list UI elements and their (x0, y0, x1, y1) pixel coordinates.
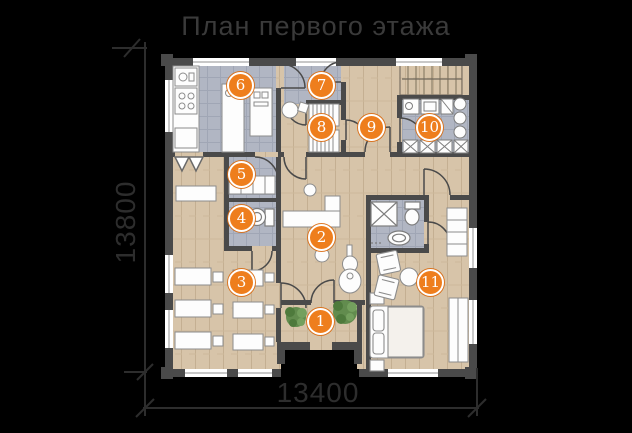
bed-icon (370, 306, 424, 358)
room-number: 8 (317, 120, 327, 135)
room-number: 10 (420, 120, 439, 135)
room-number: 4 (237, 211, 247, 226)
room-marker-11: 11 (417, 269, 444, 296)
shower-icon (371, 202, 397, 226)
floor-plan (0, 0, 632, 433)
dimension-height-label: 13800 (110, 181, 142, 264)
room-marker-10: 10 (416, 114, 443, 141)
room-number: 2 (317, 230, 327, 245)
counter (283, 211, 340, 227)
sink-icon (388, 231, 410, 245)
stairs-icon (400, 63, 462, 95)
toilet-icon (405, 202, 420, 225)
room-number: 1 (316, 314, 326, 329)
sideboard (176, 186, 216, 201)
dimension-width-label: 13400 (277, 377, 360, 409)
room-marker-5: 5 (228, 161, 255, 188)
room-marker-7: 7 (308, 72, 335, 99)
room-number: 3 (237, 275, 247, 290)
floor-plan-page: План первого этажа (0, 0, 632, 433)
room-marker-3: 3 (228, 269, 255, 296)
room-number: 7 (317, 78, 327, 93)
room-marker-8: 8 (308, 114, 335, 141)
boiler-icon (454, 112, 466, 124)
room-marker-2: 2 (308, 224, 335, 251)
armchair-icon (374, 275, 399, 300)
cabinet-icons (403, 140, 468, 153)
sink-icon (403, 99, 419, 114)
room-number: 6 (236, 78, 246, 93)
washer-icon (421, 99, 439, 114)
stool-icon (304, 184, 316, 196)
washer-icon (441, 99, 453, 114)
room-marker-6: 6 (227, 72, 254, 99)
room-number: 5 (237, 167, 247, 182)
room-marker-1: 1 (307, 308, 334, 335)
boiler-icon (454, 98, 466, 110)
fridge-icon (175, 128, 197, 148)
room-number: 9 (367, 120, 377, 135)
armchair-icon (376, 250, 401, 275)
side-table-icon (400, 268, 418, 286)
table-icon (282, 102, 298, 118)
room-number: 11 (421, 275, 440, 290)
room-marker-4: 4 (228, 205, 255, 232)
stove-icon (175, 88, 197, 114)
plant-icon (333, 300, 357, 324)
boiler-icon (454, 126, 466, 138)
room-marker-9: 9 (358, 114, 385, 141)
kitchen-appliance (250, 88, 272, 136)
nightstand (370, 360, 384, 371)
